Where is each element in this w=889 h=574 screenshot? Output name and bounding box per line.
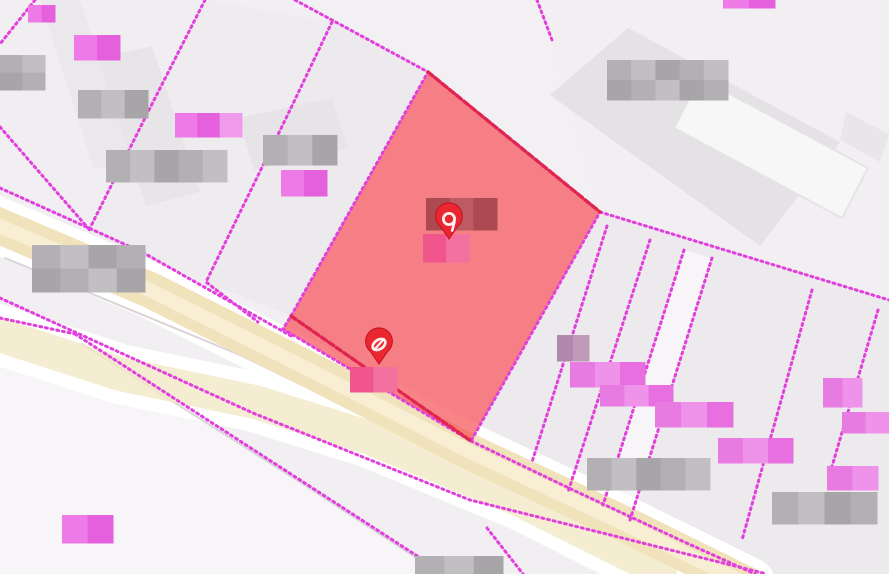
blurred-label-stair-3-cell — [681, 402, 708, 428]
blurred-label-stair-2-cell — [600, 385, 625, 407]
blurred-label-stair-0 — [557, 335, 590, 362]
blurred-label-br-gray1 — [587, 458, 711, 491]
blurred-label-stair-1-cell — [570, 362, 596, 388]
blurred-label-tr-gray-cell — [607, 80, 632, 101]
blurred-label-tr-tiny — [723, 0, 776, 9]
blurred-label-tl-pink-cell — [74, 35, 98, 61]
blurred-label-mid-gray-cell — [203, 150, 228, 183]
blurred-label-tl-tiny — [28, 5, 56, 23]
blurred-label-br-gray2 — [772, 492, 878, 525]
blurred-label-stair-1-cell — [595, 362, 621, 388]
blurred-label-stair-3-cell — [655, 402, 682, 428]
blurred-label-mid-pink2-cell — [304, 170, 328, 197]
blurred-label-br-pink1-cell — [743, 438, 769, 464]
blurred-label-tl-gray2-cell — [78, 90, 102, 119]
blurred-label-tr-gray-cell — [655, 60, 680, 81]
blurred-label-tl-gray-cell — [0, 55, 23, 73]
blurred-label-br-pink1 — [718, 438, 794, 464]
blurred-label-right-1-cell — [843, 378, 863, 408]
blurred-label-right-1-cell — [823, 378, 843, 408]
blurred-label-tl-pink-cell — [97, 35, 121, 61]
blurred-label-mid-gray2 — [263, 135, 338, 166]
blurred-label-tl-gray2 — [78, 90, 149, 119]
blurred-label-br-pink1-cell — [768, 438, 794, 464]
blurred-label-tr-gray-cell — [680, 60, 705, 81]
blurred-label-mid-gray-cell — [130, 150, 155, 183]
blurred-label-pin2-pink-cell — [350, 367, 374, 393]
blurred-label-tr-tiny-cell — [749, 0, 776, 9]
blurred-label-br-gray1-cell — [587, 458, 612, 491]
blurred-label-br-pink1-cell — [718, 438, 744, 464]
blurred-label-mid-pink-cell — [197, 113, 220, 138]
blurred-label-right-2-cell — [842, 412, 866, 434]
blurred-label-tr-gray — [607, 60, 729, 101]
blurred-label-tl-gray2-cell — [125, 90, 149, 119]
blurred-label-tr-gray-cell — [704, 80, 729, 101]
blurred-label-pin1-dark-cell — [473, 198, 497, 231]
blurred-label-mid-pink-cell — [220, 113, 243, 138]
blurred-label-stair-0-cell — [573, 335, 590, 362]
blurred-label-bl-pink-cell — [62, 515, 88, 544]
blurred-label-br-gray2-cell — [825, 492, 852, 525]
blurred-label-tl-gray-cell — [0, 73, 23, 91]
blurred-label-br-gray1-cell — [636, 458, 661, 491]
blurred-label-tr-gray-cell — [704, 60, 729, 81]
blurred-label-br-gray2-cell — [851, 492, 878, 525]
blurred-label-tl-gray-cell — [23, 73, 46, 91]
blurred-label-pin2-pink — [350, 367, 398, 393]
blurred-label-tr-tiny-cell — [723, 0, 750, 9]
blurred-label-mid-gray2-cell — [312, 135, 337, 166]
blurred-label-tr-gray-cell — [607, 60, 632, 81]
blurred-label-tr-gray-cell — [631, 60, 656, 81]
blurred-label-br-pink2 — [827, 466, 879, 491]
blurred-label-tr-gray-cell — [680, 80, 705, 101]
blurred-label-road-left-cell — [60, 245, 89, 269]
blurred-label-br-gray2-cell — [798, 492, 825, 525]
blurred-label-road-left-cell — [32, 269, 61, 293]
blurred-label-br-pink2-cell — [853, 466, 879, 491]
blurred-label-pin1-pink-cell — [423, 234, 447, 263]
map-canvas[interactable] — [0, 0, 889, 574]
blurred-label-bottom-cell — [474, 556, 504, 574]
blurred-label-road-left — [32, 245, 146, 293]
blurred-label-tl-gray2-cell — [101, 90, 125, 119]
blurred-label-bottom — [415, 556, 504, 574]
blurred-label-pin1-pink — [423, 234, 470, 263]
blurred-label-mid-gray-cell — [179, 150, 204, 183]
blurred-label-road-left-cell — [32, 245, 61, 269]
blurred-label-mid-pink2 — [281, 170, 328, 197]
blurred-label-mid-gray — [106, 150, 228, 183]
blurred-label-road-left-cell — [89, 269, 118, 293]
blurred-label-right-2 — [842, 412, 889, 434]
blurred-label-road-left-cell — [89, 245, 118, 269]
blurred-label-tl-tiny-cell — [42, 5, 56, 23]
blurred-label-stair-1 — [570, 362, 646, 388]
blurred-label-mid-gray2-cell — [288, 135, 313, 166]
blurred-label-mid-pink2-cell — [281, 170, 305, 197]
blurred-label-bl-pink — [62, 515, 114, 544]
blurred-label-stair-1-cell — [620, 362, 646, 388]
blurred-label-tl-pink — [74, 35, 121, 61]
blurred-label-br-pink2-cell — [827, 466, 853, 491]
blurred-label-mid-pink — [175, 113, 243, 138]
blurred-label-bl-pink-cell — [88, 515, 114, 544]
blurred-label-stair-3-cell — [707, 402, 734, 428]
blurred-label-tr-gray-cell — [655, 80, 680, 101]
blurred-label-right-2-cell — [866, 412, 889, 434]
blurred-label-mid-gray-cell — [154, 150, 179, 183]
blurred-label-br-gray1-cell — [685, 458, 710, 491]
blurred-label-tl-tiny-cell — [28, 5, 42, 23]
blurred-label-right-1 — [823, 378, 863, 408]
blurred-label-mid-pink-cell — [175, 113, 198, 138]
blurred-label-bottom-cell — [415, 556, 445, 574]
blurred-label-road-left-cell — [117, 245, 146, 269]
blurred-label-stair-2-cell — [624, 385, 649, 407]
blurred-label-tr-gray-cell — [631, 80, 656, 101]
blurred-label-br-gray1-cell — [661, 458, 686, 491]
cadastral-map — [0, 0, 889, 574]
blurred-label-road-left-cell — [60, 269, 89, 293]
blurred-label-stair-0-cell — [557, 335, 574, 362]
blurred-label-mid-gray2-cell — [263, 135, 288, 166]
blurred-label-br-gray2-cell — [772, 492, 799, 525]
blurred-label-tl-gray — [0, 55, 46, 91]
blurred-label-bottom-cell — [444, 556, 474, 574]
blurred-label-mid-gray-cell — [106, 150, 131, 183]
blurred-label-stair-3 — [655, 402, 734, 428]
blurred-label-br-gray1-cell — [612, 458, 637, 491]
blurred-label-tl-gray-cell — [23, 55, 46, 73]
blurred-label-road-left-cell — [117, 269, 146, 293]
blurred-label-pin2-pink-cell — [374, 367, 398, 393]
